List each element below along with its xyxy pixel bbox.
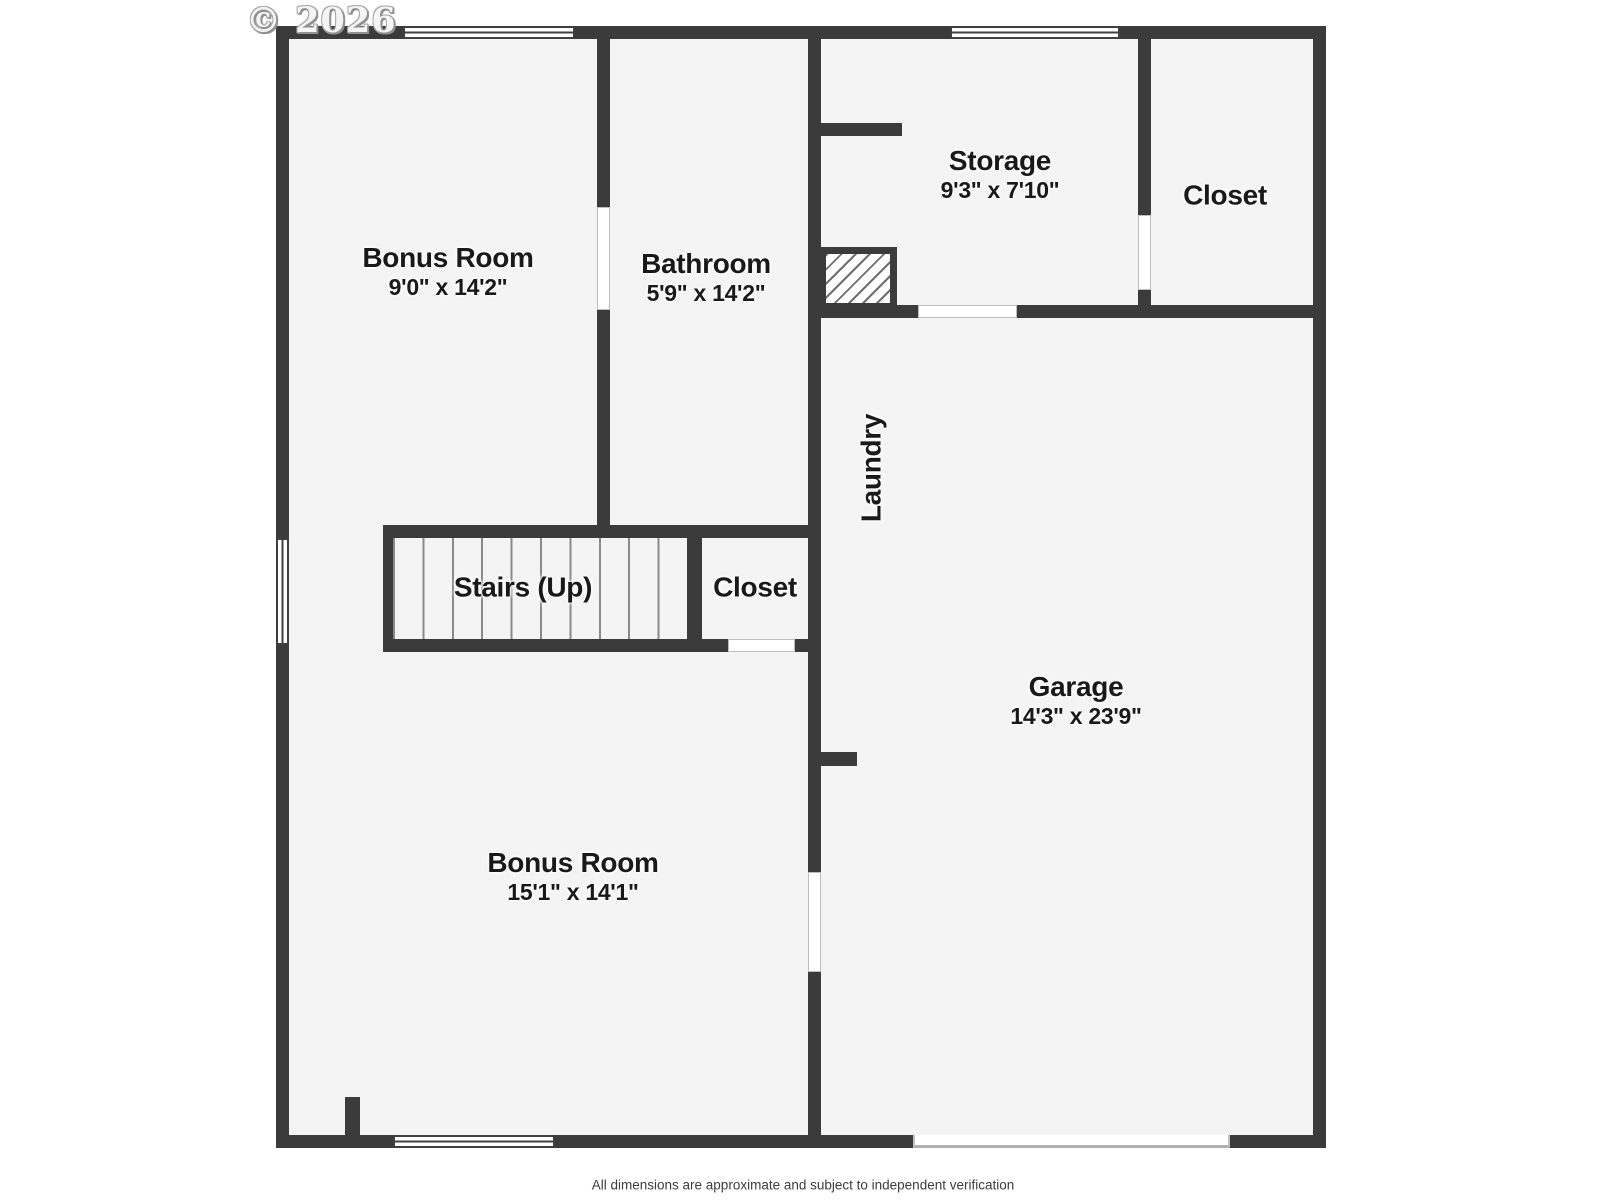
room-name: Bonus Room [487, 848, 658, 879]
window-top-bonus [403, 26, 575, 39]
wall-stub-bottom-left [345, 1097, 360, 1135]
wall-stub-garage [821, 752, 857, 766]
footer-disclaimer: All dimensions are approximate and subje… [592, 1178, 1015, 1193]
room-name: Closet [713, 573, 797, 604]
room-label-closet-mid: Closet [713, 573, 797, 604]
window-bottom [393, 1135, 555, 1148]
floor-plan: Bonus Room 9'0" x 14'2" Bathroom 5'9" x … [0, 0, 1600, 1200]
room-label-laundry: Laundry [857, 414, 888, 522]
wall-stairs-bottom [383, 639, 728, 652]
wall-bonus-bathroom-lower [597, 310, 610, 538]
chimney-hatch-box [819, 247, 897, 310]
wall-storage-laundry-right [1017, 305, 1313, 318]
wall-closet-mid-bottom-right [795, 639, 808, 652]
room-name: Stairs (Up) [454, 573, 592, 604]
room-label-closet-top: Closet [1183, 181, 1267, 212]
exterior-wall-right [1313, 26, 1326, 1148]
window-left [276, 538, 289, 645]
garage-door [913, 1135, 1230, 1148]
wall-bonus-bathroom-upper [597, 39, 610, 207]
copyright-watermark: © 2026 [246, 0, 397, 41]
room-dimensions: 15'1" x 14'1" [487, 879, 658, 907]
room-name: Bonus Room [362, 243, 533, 274]
room-label-bonus-bottom: Bonus Room 15'1" x 14'1" [487, 848, 658, 906]
wall-center-vertical-upper [808, 39, 821, 872]
room-label-storage: Storage 9'3" x 7'10" [941, 146, 1060, 204]
room-label-bathroom: Bathroom 5'9" x 14'2" [641, 249, 771, 307]
room-dimensions: 5'9" x 14'2" [641, 280, 771, 308]
room-dimensions: 14'3" x 23'9" [1010, 703, 1141, 731]
door-bathroom [597, 207, 610, 310]
wall-stairs-top [383, 525, 808, 538]
room-label-bonus-top: Bonus Room 9'0" x 14'2" [362, 243, 533, 301]
wall-stub-storage [821, 123, 902, 136]
room-dimensions: 9'0" x 14'2" [362, 274, 533, 302]
wall-center-vertical-lower [808, 972, 821, 1135]
room-name: Bathroom [641, 249, 771, 280]
room-label-stairs: Stairs (Up) [454, 573, 592, 604]
window-top-storage [950, 26, 1120, 39]
room-dimensions: 9'3" x 7'10" [941, 177, 1060, 205]
room-label-garage: Garage 14'3" x 23'9" [1010, 672, 1141, 730]
wall-stairs-closet-divider [687, 525, 702, 652]
wall-stairs-left-cap [383, 525, 393, 652]
room-name: Closet [1183, 181, 1267, 212]
room-name: Laundry [857, 414, 888, 522]
door-closet-mid [728, 639, 795, 652]
door-laundry-garage [808, 872, 821, 972]
door-closet-top [1138, 215, 1151, 290]
room-name: Garage [1010, 672, 1141, 703]
room-name: Storage [941, 146, 1060, 177]
wall-closet-top-left-upper [1138, 39, 1151, 215]
wall-closet-top-left-lower [1138, 290, 1151, 318]
door-storage [918, 305, 1017, 318]
